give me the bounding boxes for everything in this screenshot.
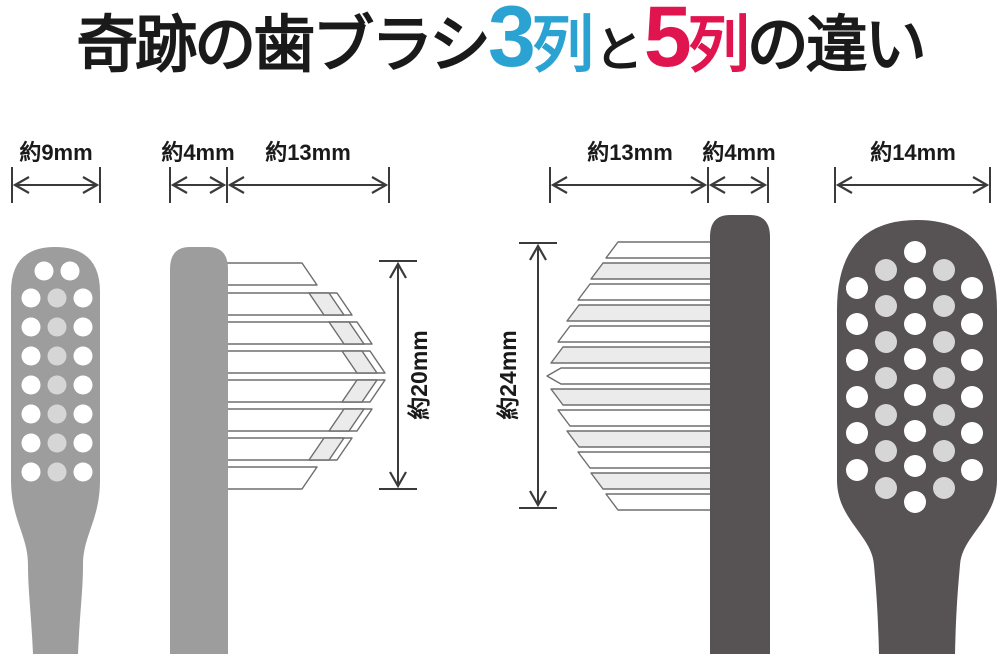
brush3-bristle-length-label: 約13mm [265,140,351,165]
title-three-number: 3 [488,0,532,80]
dimension-brush3-bristle-height: 約20mm [379,261,432,489]
brush-3-front-view [11,247,100,654]
brush3-head-width-label: 約9mm [19,140,92,165]
toothbrush-comparison-diagram: 約9mm 約4mm 約13mm 約20mm 約13mm 約4m [0,0,1000,654]
dimension-brush5-head-width: 約14mm [835,140,990,203]
title-five-unit: 列 [688,15,747,77]
brush-5-side-stem [710,215,770,654]
brush5-neck-width-label: 約4mm [702,140,775,165]
dimension-brush5-bristle-length-and-neck: 約13mm 約4mm [550,140,776,203]
brush5-head-width-label: 約14mm [870,140,956,165]
title-suffix: の違い [747,15,924,77]
brush-5-side-view [547,215,770,654]
brush3-bristle-height-label: 約20mm [406,330,432,419]
title-three-unit: 列 [532,15,591,77]
brush5-bristle-length-label: 約13mm [587,140,673,165]
dimension-brush3-head-width: 約9mm [12,140,100,203]
page-title: 奇跡の歯ブラシ 3 列 と 5 列 の違い [0,0,1000,80]
brush-5-front-view [837,220,997,654]
infographic-canvas: 約9mm 約4mm 約13mm 約20mm 約13mm 約4m [0,0,1000,654]
brush-3-side-bristles [226,263,385,489]
title-five-number: 5 [644,0,688,80]
brush3-neck-width-label: 約4mm [161,140,234,165]
brush-5-side-bristles [547,242,715,510]
title-connector: と [591,27,644,75]
brush-3-side-view [170,247,385,654]
dimension-brush3-neck-and-bristle-length: 約4mm 約13mm [161,140,389,203]
title-prefix: 奇跡の歯ブラシ [76,15,488,77]
brush5-bristle-height-label: 約24mm [495,330,521,419]
brush-3-side-stem [170,247,228,654]
